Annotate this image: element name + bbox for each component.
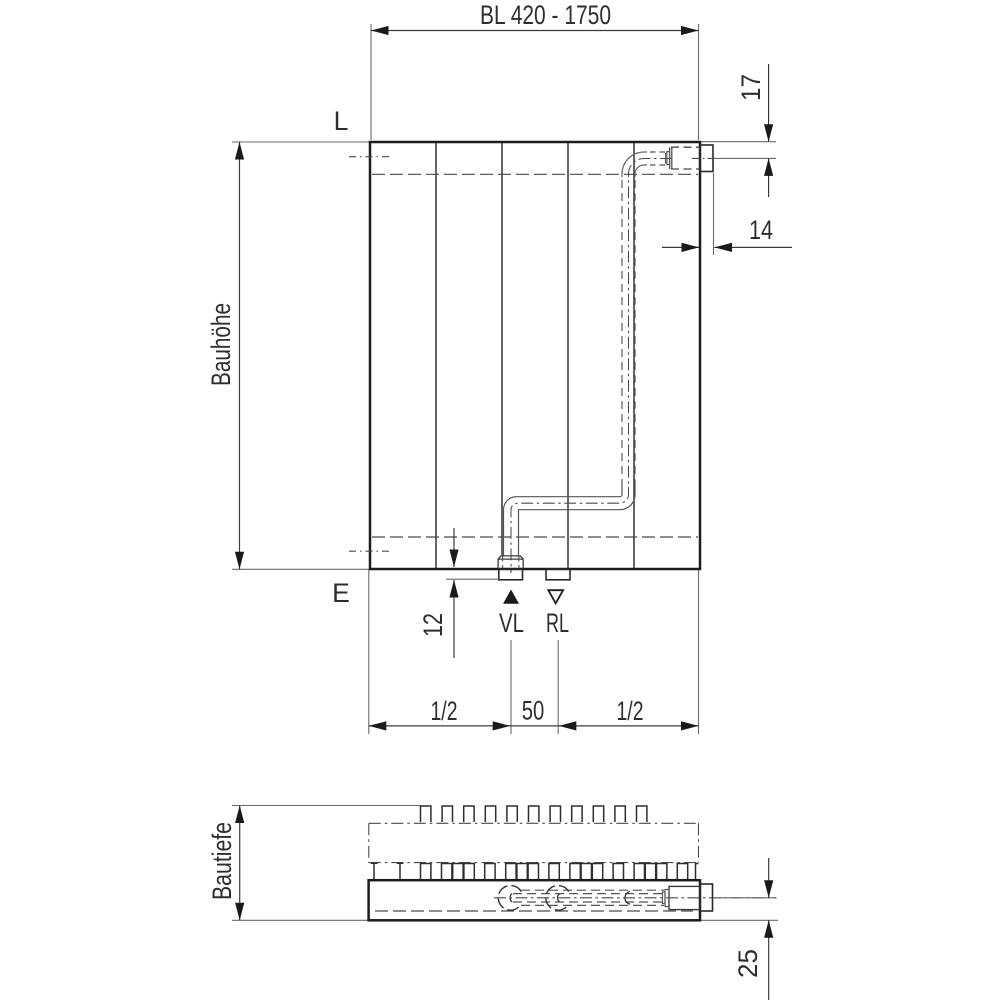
svg-text:L: L — [334, 106, 349, 136]
svg-text:25: 25 — [733, 949, 763, 978]
svg-text:E: E — [332, 578, 350, 608]
svg-text:1/2: 1/2 — [431, 696, 458, 726]
svg-text:17: 17 — [736, 74, 766, 101]
svg-text:12: 12 — [418, 613, 448, 637]
svg-text:1/2: 1/2 — [617, 696, 644, 726]
svg-text:RL: RL — [546, 608, 569, 638]
svg-text:Bauhöhe: Bauhöhe — [206, 303, 236, 386]
svg-text:BL 420 - 1750: BL 420 - 1750 — [480, 0, 611, 30]
svg-text:VL: VL — [499, 608, 524, 638]
svg-text:50: 50 — [522, 696, 545, 726]
svg-text:14: 14 — [749, 215, 773, 245]
svg-text:Bautiefe: Bautiefe — [207, 822, 237, 900]
